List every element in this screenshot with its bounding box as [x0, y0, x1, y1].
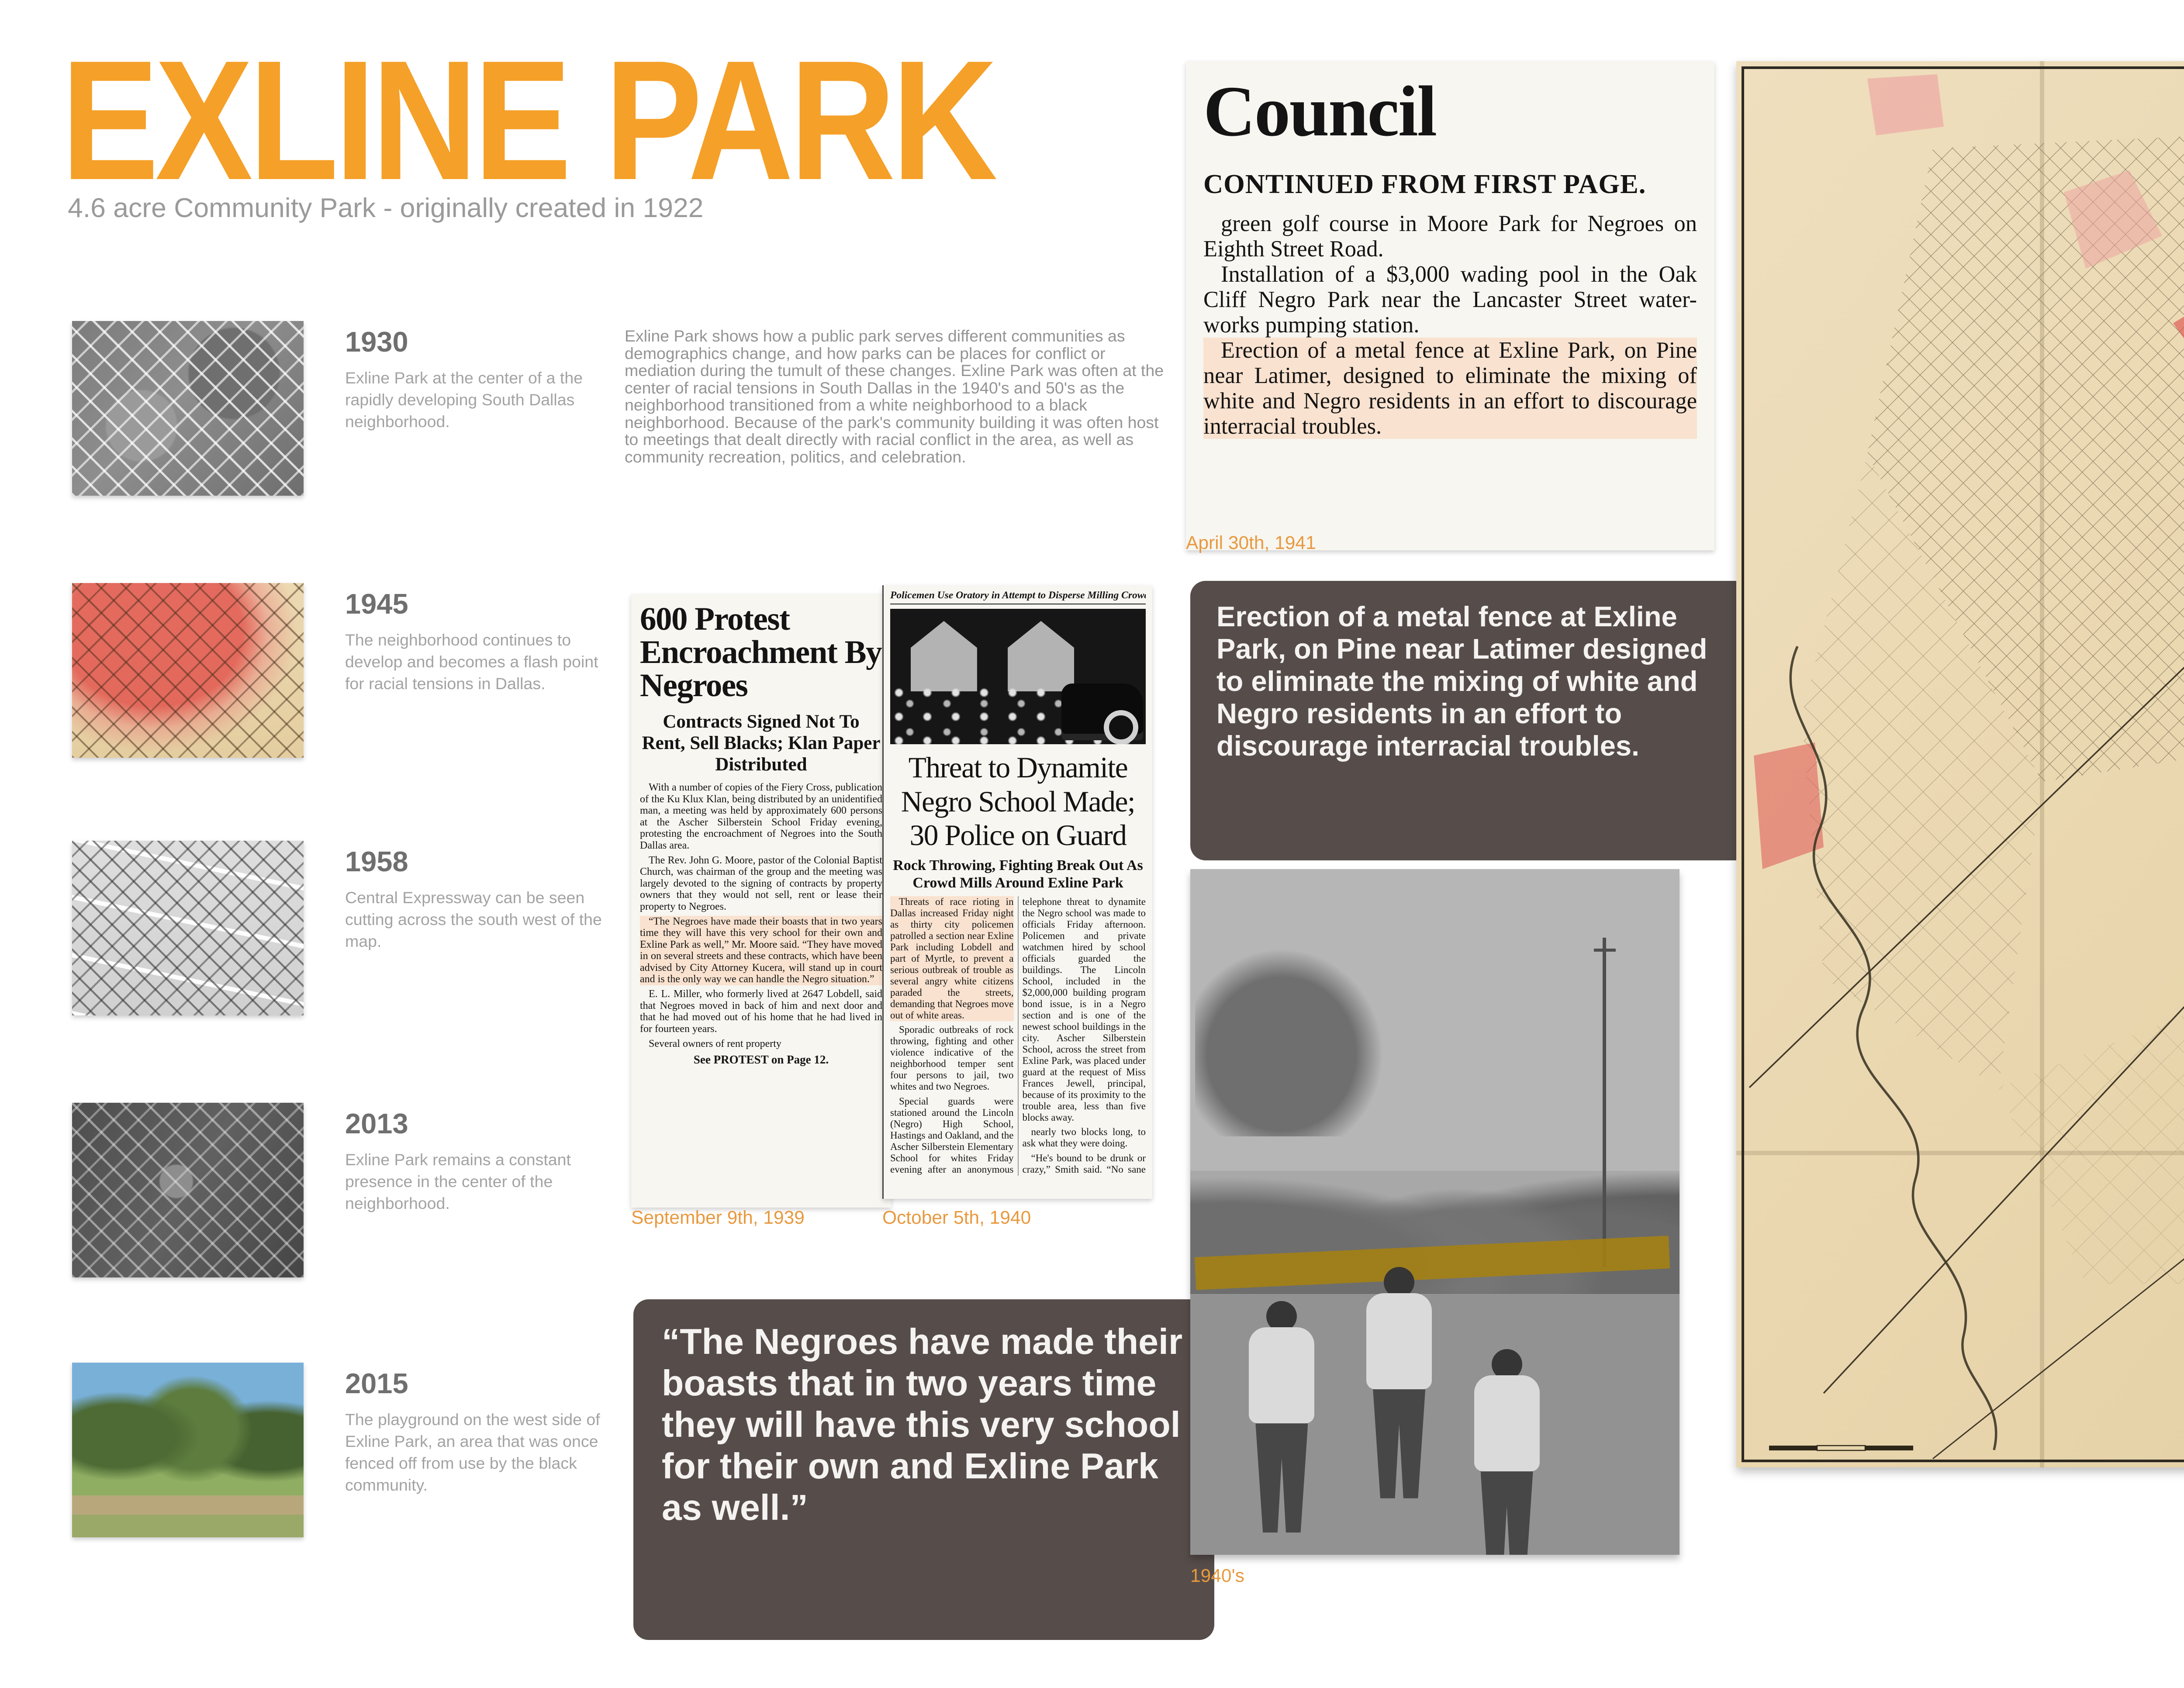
child-figure — [1474, 1349, 1540, 1555]
timeline-caption: The playground on the west side of Exlin… — [345, 1408, 607, 1496]
paragraph: The Rev. John G. Moore, pastor of the Co… — [640, 855, 882, 913]
clipping-masthead: Council — [1203, 74, 1697, 148]
paragraph: nearly two blocks long, to ask what they… — [1023, 1126, 1146, 1149]
timeline-caption: Central Expressway can be seen cutting a… — [345, 887, 607, 952]
timeline-thumb-1958-map — [72, 841, 304, 1015]
clipping-headline: 600 Protest Encroachment By Negroes — [640, 603, 882, 702]
timeline-thumb-2013-aerial — [72, 1103, 304, 1277]
highlighted-paragraph: Threats of race rioting in Dallas increa… — [890, 896, 1014, 1021]
car-silhouette — [1061, 683, 1143, 740]
clipping-threat-dynamite: Policemen Use Oratory in Attempt to Disp… — [882, 585, 1152, 1199]
photo-children-playing-1940s — [1190, 869, 1679, 1555]
clipping-body: Threats of race rioting in Dallas increa… — [890, 896, 1146, 1176]
clipping-date: September 9th, 1939 — [631, 1208, 805, 1229]
clipping-date: October 5th, 1940 — [882, 1208, 1031, 1229]
timeline-year: 2013 — [345, 1107, 607, 1140]
news-photo-caption: Policemen Use Oratory in Attempt to Disp… — [890, 590, 1146, 604]
child-figure — [1249, 1301, 1314, 1533]
timeline-item-2015: 2015 The playground on the west side of … — [345, 1367, 607, 1496]
timeline-year: 1958 — [345, 845, 607, 878]
paragraph: With a number of copies of the Fiery Cro… — [640, 782, 882, 851]
timeline-item-2013: 2013 Exline Park remains a constant pres… — [345, 1107, 607, 1214]
timeline-thumb-1945-map — [72, 583, 304, 758]
news-photo-night-crowd — [890, 609, 1146, 744]
legs — [1481, 1471, 1533, 1555]
timeline-caption: Exline Park at the center of a the rapid… — [345, 367, 607, 432]
pull-quote-fence: Erection of a metal fence at Exline Park… — [1190, 581, 1749, 860]
timeline-year: 1945 — [345, 587, 607, 620]
intro-paragraph: Exline Park shows how a public park serv… — [625, 328, 1166, 466]
map-artwork: ~LEGEND~ Negro Section Mexican Section C… — [1736, 61, 2184, 1467]
shirt — [1474, 1375, 1540, 1471]
timeline-caption: Exline Park remains a constant presence … — [345, 1149, 607, 1214]
paragraph: Installation of a $3,000 wading pool in … — [1203, 262, 1697, 338]
paragraph: Sporadic outbreaks of rock throwing, fig… — [890, 1024, 1014, 1092]
shirt — [1249, 1327, 1314, 1423]
paragraph: green golf course in Moore Park for Negr… — [1203, 211, 1697, 262]
car-wheel — [1104, 710, 1138, 744]
child-figure — [1366, 1267, 1432, 1498]
timeline-item-1930: 1930 Exline Park at the center of a the … — [345, 325, 607, 432]
clipping-body: With a number of copies of the Fiery Cro… — [640, 782, 882, 1066]
highlighted-paragraph: Erection of a metal fence at Exline Park… — [1203, 338, 1697, 439]
clipping-body: green golf course in Moore Park for Negr… — [1203, 211, 1697, 439]
page-title: EXLINE PARK — [61, 39, 994, 201]
timeline-thumb-1930-aerial — [72, 321, 304, 496]
house-silhouette — [911, 621, 977, 691]
legs — [1373, 1389, 1425, 1498]
timeline-thumb-2015-photo — [72, 1363, 304, 1537]
shirt — [1366, 1293, 1432, 1389]
legs — [1255, 1423, 1308, 1533]
timeline-year: 1930 — [345, 325, 607, 358]
clipping-headline: Threat to Dynamite Negro School Made; 30… — [890, 751, 1146, 853]
jump-line: See PROTEST on Page 12. — [640, 1054, 882, 1066]
photo-caption: 1940's — [1190, 1566, 1244, 1587]
clipping-subhead: Contracts Signed Not To Rent, Sell Black… — [640, 711, 882, 775]
house-silhouette — [1008, 621, 1074, 691]
highlighted-paragraph: “The Negroes have made their boasts that… — [640, 916, 882, 985]
timeline-item-1945: 1945 The neighborhood continues to devel… — [345, 587, 607, 694]
clipping-continued-line: CONTINUED FROM FIRST PAGE. — [1203, 168, 1697, 200]
timeline-caption: The neighborhood continues to develop an… — [345, 629, 607, 694]
historical-dallas-map: ~LEGEND~ Negro Section Mexican Section C… — [1736, 61, 2184, 1467]
utility-pole — [1603, 938, 1606, 1267]
tree-silhouette — [1195, 931, 1400, 1136]
paragraph: Several owners of rent property — [640, 1038, 882, 1050]
page-subtitle: 4.6 acre Community Park - originally cre… — [68, 192, 704, 224]
clipping-council: Council CONTINUED FROM FIRST PAGE. green… — [1186, 61, 1714, 550]
timeline-item-1958: 1958 Central Expressway can be seen cutt… — [345, 845, 607, 952]
pull-quote-boasts: “The Negroes have made their boasts that… — [633, 1299, 1214, 1640]
clipping-subhead: Rock Throwing, Fighting Break Out As Cro… — [890, 857, 1146, 892]
exhibit-poster: EXLINE PARK 4.6 acre Community Park - or… — [0, 0, 2184, 1688]
timeline-year: 2015 — [345, 1367, 607, 1400]
clipping-600-protest: 600 Protest Encroachment By Negroes Cont… — [631, 594, 891, 1208]
clipping-date: April 30th, 1941 — [1186, 533, 1316, 554]
paragraph: E. L. Miller, who formerly lived at 2647… — [640, 988, 882, 1035]
